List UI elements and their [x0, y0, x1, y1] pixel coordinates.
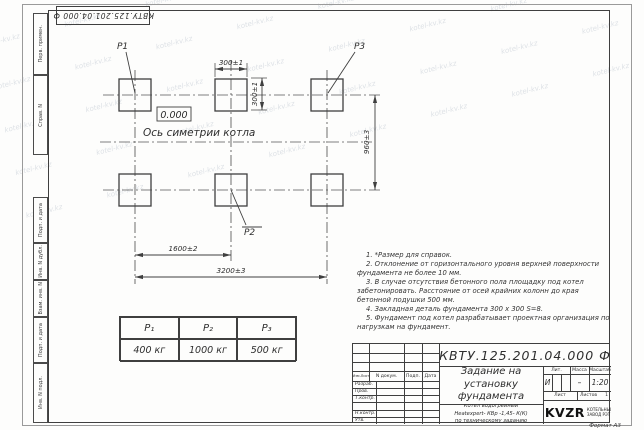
sheet-label: Лист: [543, 391, 577, 400]
sig-row-utv: Утв.: [353, 417, 376, 424]
scale-label: Масштаб: [589, 366, 611, 374]
note-item: 5. Фундамент под котел разрабатывает про…: [357, 314, 613, 332]
note-item: 3. В случае отсутствия бетонного пола пл…: [357, 278, 613, 305]
sheets-label: Листов: [580, 393, 597, 398]
axis-symmetry-label: Ось симетрии котла: [143, 127, 255, 139]
product-description: Котел водогрейный Heatexpert- КВр -1,45-…: [439, 404, 543, 424]
dim-960: 960±3: [362, 129, 371, 154]
sig-header-podp: Подп.: [404, 371, 422, 381]
loads-table-value-p3: 500 кг: [237, 339, 296, 362]
scale-value: 1:20: [589, 374, 611, 391]
sig-row-tkontr: Т.контр.: [353, 395, 376, 402]
extension-lines: [215, 63, 267, 110]
sig-header-n-dokum: N докум.: [369, 371, 404, 381]
lit-value: И: [543, 374, 552, 391]
dim-300-width: 300±1: [219, 58, 243, 67]
sig-row-razrab: Разраб.: [353, 381, 376, 388]
sig-header-data: Дата: [422, 371, 439, 381]
sheets-cell: Листов 1: [577, 391, 611, 400]
notes-block: 1. *Размер для справок. 2. Отклонение от…: [357, 251, 613, 332]
dim-1600: 1600±2: [169, 244, 198, 253]
dim-3200: 3200±3: [217, 266, 246, 275]
note-item: 4. Закладная деталь фундамента 300 x 300…: [357, 305, 613, 314]
product-line: по техническому заданию: [455, 418, 527, 424]
loads-table-value-p2: 1000 кг: [179, 339, 238, 362]
loads-table-value-p1: 400 кг: [120, 339, 179, 362]
elevation-value: 0.000: [160, 110, 187, 121]
loads-table: P₁ P₂ P₃ 400 кг 1000 кг 500 кг: [119, 316, 297, 361]
leader-lines: [126, 52, 355, 227]
mass-label: Масса: [570, 366, 589, 374]
kvzr-logo-text: KVZR: [545, 405, 585, 420]
drawing-title: Задание на установку фундамента: [439, 366, 543, 404]
label-p2: P2: [244, 228, 255, 238]
note-item: 1. *Размер для справок.: [357, 251, 613, 260]
note-item: 2. Отклонение от горизонтального уровня …: [357, 260, 613, 278]
loads-table-header-p1: P₁: [120, 317, 179, 339]
company-name: КОТЕЛЬНЫЙ ЗАВОД РЭТ: [587, 407, 611, 417]
loads-table-header-p3: P₃: [237, 317, 296, 339]
centerlines: [100, 60, 382, 284]
loads-table-header-p2: P₂: [179, 317, 238, 339]
sig-row-nkontr: Н.контр.: [353, 410, 376, 417]
title-block: Изм.Лист N докум. Подп. Дата Разраб. Про…: [352, 343, 610, 423]
product-line: Heatexpert- КВр -1,45- К(К): [454, 411, 527, 418]
mass-value: –: [570, 374, 589, 391]
sig-header-izm-list: Изм.Лист: [353, 371, 369, 381]
label-p3: P3: [354, 42, 365, 52]
sig-row-prov: Пров.: [353, 388, 376, 395]
company-logo-area: KVZR КОТЕЛЬНЫЙ ЗАВОД РЭТ: [543, 400, 611, 424]
doc-number: КВТУ.125.201.04.000 Ф: [439, 344, 611, 366]
company-line: ЗАВОД РЭТ: [587, 412, 611, 417]
dim-300-height: 300±1: [250, 82, 259, 106]
drawing-sheet: kotel-kv.kzkotel-kv.kzkotel-kv.kzkotel-k…: [0, 0, 644, 430]
format-label: Формат А3: [563, 423, 644, 429]
lit-label: Лит.: [543, 366, 570, 374]
sheets-value: 1: [605, 393, 608, 398]
label-p1: P1: [117, 42, 128, 52]
